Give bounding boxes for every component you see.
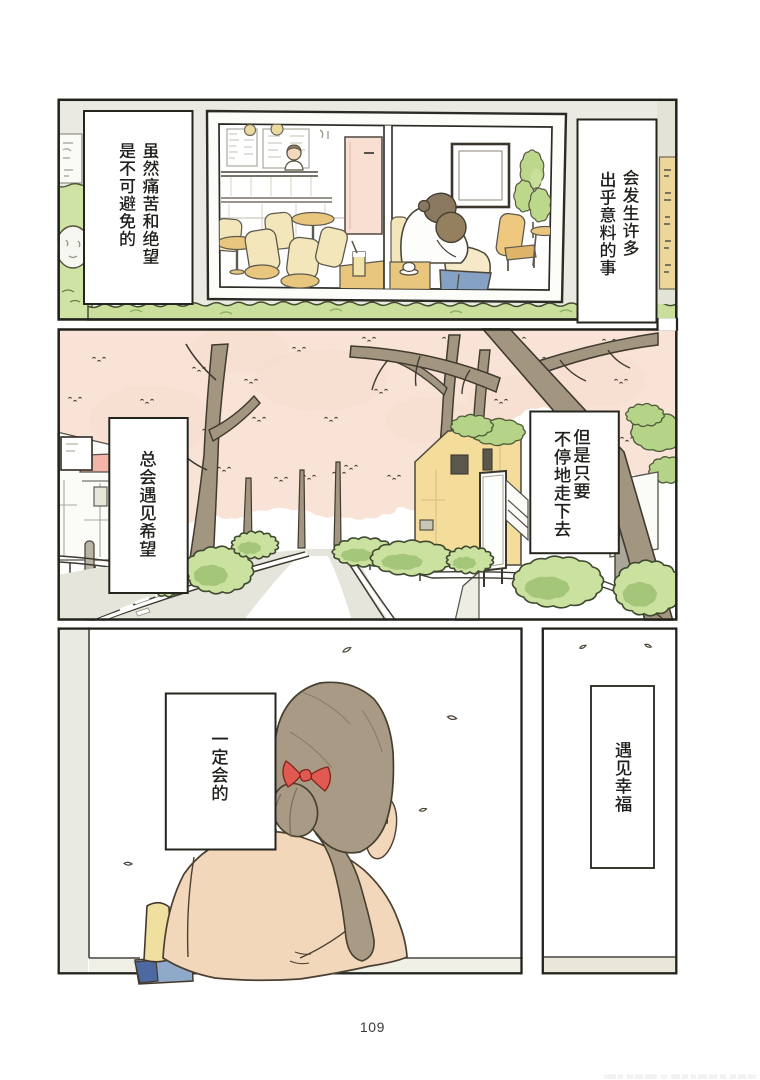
svg-text:109: 109: [360, 1019, 385, 1035]
